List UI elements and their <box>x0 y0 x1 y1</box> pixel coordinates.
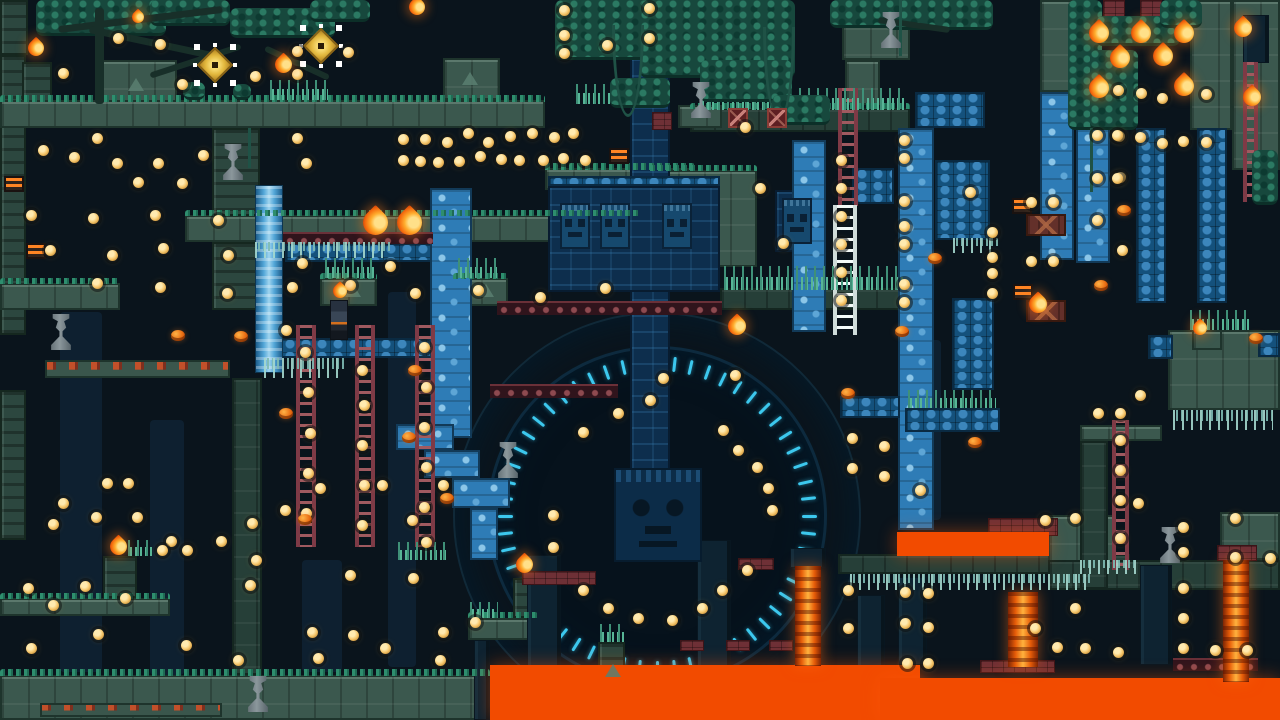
coin <box>26 210 37 221</box>
coin <box>123 478 134 489</box>
fire-bug <box>1094 280 1108 291</box>
grass-spikes <box>908 390 996 408</box>
coin <box>113 33 124 44</box>
coin <box>112 158 123 169</box>
coin <box>1048 197 1059 208</box>
coin <box>1115 495 1126 506</box>
coin <box>1026 256 1037 267</box>
ice-column <box>430 188 472 438</box>
ladder <box>415 325 435 547</box>
coin <box>1178 547 1189 558</box>
coin <box>535 292 546 303</box>
coin <box>538 155 549 166</box>
coin <box>843 623 854 634</box>
coin <box>548 510 559 521</box>
fire-bug <box>408 365 422 376</box>
coin <box>847 463 858 474</box>
coin <box>1136 88 1147 99</box>
lava-pool <box>880 678 1280 720</box>
coin <box>899 135 910 146</box>
coin <box>287 282 298 293</box>
coin <box>93 629 104 640</box>
coin <box>245 580 256 591</box>
coin <box>1133 498 1144 509</box>
tree-canopy <box>233 84 251 100</box>
coin <box>250 71 261 82</box>
dark-pillar <box>790 548 826 568</box>
coin <box>879 441 890 452</box>
grass-spikes <box>270 80 328 100</box>
coin <box>1048 256 1059 267</box>
coin <box>987 268 998 279</box>
coin <box>580 155 591 166</box>
coin <box>398 155 409 166</box>
torch-track <box>40 703 222 717</box>
coin <box>357 520 368 531</box>
coin <box>987 227 998 238</box>
icicles <box>264 358 344 378</box>
coin <box>613 408 624 419</box>
coin <box>300 347 311 358</box>
coin <box>836 155 847 166</box>
coin <box>740 122 751 133</box>
ice-column <box>470 508 498 560</box>
coin <box>419 342 430 353</box>
coin <box>527 128 538 139</box>
coin <box>1265 553 1276 564</box>
coin <box>58 498 69 509</box>
coin <box>38 145 49 156</box>
coin <box>1113 85 1124 96</box>
blue-block <box>1148 335 1173 359</box>
coin <box>1052 642 1063 653</box>
fire-bug <box>1117 205 1131 216</box>
lava-vent <box>609 148 629 164</box>
triangle-marker-icon <box>128 78 144 91</box>
coin <box>357 365 368 376</box>
coin <box>280 505 291 516</box>
coin <box>26 643 37 654</box>
coin <box>1230 552 1241 563</box>
brick-platform <box>522 571 596 585</box>
lava-vent <box>26 243 46 259</box>
lava-fall <box>795 566 821 666</box>
icicles <box>850 574 1090 590</box>
coin <box>158 243 169 254</box>
coin <box>155 39 166 50</box>
coin <box>475 151 486 162</box>
blue-block <box>840 396 900 418</box>
carved-face-icon <box>782 198 812 244</box>
coin <box>902 658 913 669</box>
coin <box>987 252 998 263</box>
coin <box>836 267 847 278</box>
coin <box>1070 603 1081 614</box>
coin <box>899 153 910 164</box>
coin <box>1178 613 1189 624</box>
coin <box>1092 130 1103 141</box>
coin <box>359 480 370 491</box>
dark-pillar <box>474 640 490 720</box>
coin <box>514 155 525 166</box>
coin <box>1115 408 1126 419</box>
carved-column <box>103 556 137 598</box>
coin <box>223 250 234 261</box>
blue-block <box>905 408 1000 432</box>
grass-spikes <box>458 258 500 278</box>
coin <box>1080 643 1091 654</box>
lava-band <box>897 532 1049 556</box>
ice-column <box>452 478 510 508</box>
coin <box>1230 513 1241 524</box>
coin <box>1210 645 1221 656</box>
coin <box>923 658 934 669</box>
blue-block <box>1197 128 1227 303</box>
carved-face-icon <box>662 203 692 249</box>
coin <box>836 295 847 306</box>
player-character <box>330 300 348 340</box>
coin <box>216 536 227 547</box>
coin <box>307 627 318 638</box>
coin <box>305 428 316 439</box>
coin <box>58 68 69 79</box>
coin <box>281 325 292 336</box>
coin <box>157 545 168 556</box>
coin <box>1092 173 1103 184</box>
tree-canopy <box>1252 150 1278 205</box>
blue-block <box>852 168 894 204</box>
fire-bug <box>440 493 454 504</box>
artifact-af-hole <box>212 62 218 68</box>
coin <box>899 279 910 290</box>
coin <box>1201 89 1212 100</box>
game-viewport[interactable] <box>0 0 1280 720</box>
coin <box>1178 583 1189 594</box>
coin <box>359 400 370 411</box>
lava-fall <box>1223 560 1249 682</box>
coin <box>755 183 766 194</box>
brick-platform <box>726 640 750 651</box>
coin <box>133 177 144 188</box>
coin <box>602 40 613 51</box>
coin <box>433 157 444 168</box>
coin <box>292 46 303 57</box>
grass-spikes <box>724 266 904 290</box>
coin <box>658 373 669 384</box>
coin <box>1070 513 1081 524</box>
coin <box>155 282 166 293</box>
blue-block <box>935 160 990 240</box>
flame-icon <box>1149 42 1177 70</box>
coin <box>568 128 579 139</box>
coin <box>1117 245 1128 256</box>
coin <box>421 462 432 473</box>
coin <box>1115 435 1126 446</box>
coin <box>80 581 91 592</box>
coin <box>879 471 890 482</box>
lava-vent <box>4 176 24 192</box>
coin <box>752 462 763 473</box>
coin <box>1112 130 1123 141</box>
coin <box>177 178 188 189</box>
coin <box>421 537 432 548</box>
tree-canopy <box>310 0 370 22</box>
hanging-vine <box>248 128 251 168</box>
coin <box>442 137 453 148</box>
carved-column <box>0 390 26 540</box>
stone-block <box>0 283 120 310</box>
coin <box>1030 623 1041 634</box>
icicles <box>1173 410 1273 430</box>
coin <box>1242 645 1253 656</box>
coin <box>48 600 59 611</box>
coin <box>899 221 910 232</box>
coin <box>454 156 465 167</box>
coin <box>182 545 193 556</box>
coin <box>1113 647 1124 658</box>
icicles <box>953 238 998 253</box>
icicles <box>255 242 390 258</box>
tree-branch <box>95 8 104 104</box>
coin <box>45 245 56 256</box>
coin <box>836 183 847 194</box>
coin <box>836 239 847 250</box>
brick-platform <box>652 112 672 130</box>
fire-bug <box>895 326 909 337</box>
coin <box>843 585 854 596</box>
blue-block <box>915 92 985 128</box>
chain-platform <box>497 301 722 315</box>
coin <box>923 622 934 633</box>
coin <box>644 3 655 14</box>
grass-tuft <box>0 669 490 676</box>
dark-pillar <box>857 595 885 667</box>
coin <box>1092 215 1103 226</box>
fire-bug <box>841 388 855 399</box>
coin <box>421 382 432 393</box>
coin <box>435 655 446 666</box>
coin <box>102 478 113 489</box>
coin <box>107 250 118 261</box>
coin <box>505 131 516 142</box>
stone-urn <box>1157 527 1183 563</box>
coin <box>483 137 494 148</box>
coin <box>292 69 303 80</box>
coin <box>915 485 926 496</box>
grass-spikes <box>600 624 626 642</box>
fire-bug <box>234 331 248 342</box>
grass-spikes <box>128 540 154 556</box>
coin <box>247 518 258 529</box>
coin <box>357 440 368 451</box>
coin <box>987 288 998 299</box>
coin <box>213 215 224 226</box>
coin <box>559 5 570 16</box>
coin <box>899 239 910 250</box>
coin <box>549 132 560 143</box>
fire-bug <box>402 432 416 443</box>
coin <box>419 502 430 513</box>
coin <box>899 196 910 207</box>
coin <box>463 128 474 139</box>
fire-bug <box>1249 333 1263 344</box>
coin <box>419 422 430 433</box>
coin <box>1040 515 1051 526</box>
golden-artifact <box>197 47 233 83</box>
coin <box>348 630 359 641</box>
coin <box>847 433 858 444</box>
coin <box>603 603 614 614</box>
brick-platform <box>769 640 793 651</box>
coin <box>742 565 753 576</box>
coin <box>1157 93 1168 104</box>
coin <box>407 515 418 526</box>
coin <box>420 134 431 145</box>
coin <box>198 150 209 161</box>
coin <box>343 47 354 58</box>
coin <box>92 278 103 289</box>
grass-tuft <box>0 593 170 599</box>
golden-artifact <box>303 28 339 64</box>
coin <box>181 640 192 651</box>
coin <box>297 258 308 269</box>
coin <box>222 288 233 299</box>
coin <box>644 33 655 44</box>
coin <box>410 288 421 299</box>
coin <box>88 213 99 224</box>
coin <box>1135 132 1146 143</box>
coin <box>899 297 910 308</box>
coin <box>398 134 409 145</box>
coin <box>1201 137 1212 148</box>
coin <box>697 603 708 614</box>
artifact-af-hole <box>318 43 324 49</box>
carved-face-icon <box>614 468 702 562</box>
coin <box>92 133 103 144</box>
coin <box>23 583 34 594</box>
fire-bug <box>928 253 942 264</box>
coin <box>633 613 644 624</box>
coin <box>1115 533 1126 544</box>
fire-bug <box>279 408 293 419</box>
fire-bug <box>968 437 982 448</box>
coin <box>438 480 449 491</box>
coin <box>1112 173 1123 184</box>
coin <box>718 425 729 436</box>
coin <box>380 643 391 654</box>
coin <box>1026 197 1037 208</box>
coin <box>836 211 847 222</box>
coin <box>578 585 589 596</box>
coin <box>1178 643 1189 654</box>
blue-block <box>1136 128 1166 303</box>
stone-block <box>0 100 545 128</box>
coin <box>345 570 356 581</box>
coin <box>415 156 426 167</box>
coin <box>900 587 911 598</box>
icicles <box>1080 560 1136 574</box>
coin <box>900 618 911 629</box>
triangle-marker-icon <box>605 664 621 677</box>
ladder <box>355 325 375 547</box>
coin <box>1093 408 1104 419</box>
flame-icon <box>106 534 130 558</box>
flame-icon <box>25 37 48 60</box>
coin <box>559 30 570 41</box>
coin <box>965 187 976 198</box>
coin <box>578 427 589 438</box>
coin <box>645 395 656 406</box>
coin <box>69 152 80 163</box>
dark-pillar <box>1140 565 1172 665</box>
carved-column <box>0 0 28 55</box>
triangle-marker-icon <box>462 72 478 85</box>
brick-platform <box>680 640 704 651</box>
coin <box>1115 465 1126 476</box>
coin <box>473 285 484 296</box>
grass-tuft <box>650 165 757 171</box>
coin <box>301 158 312 169</box>
coin <box>470 617 481 628</box>
coin <box>303 468 314 479</box>
coin <box>767 505 778 516</box>
coin <box>315 483 326 494</box>
coin <box>251 555 262 566</box>
coin <box>496 154 507 165</box>
blue-block <box>952 298 994 390</box>
grass-spikes <box>325 258 375 278</box>
coin <box>303 387 314 398</box>
coin <box>1178 522 1189 533</box>
coin <box>763 483 774 494</box>
coin <box>923 588 934 599</box>
artifact-af-dot <box>194 44 200 50</box>
coin <box>558 153 569 164</box>
coin <box>377 480 388 491</box>
coin <box>385 261 396 272</box>
coin <box>313 653 324 664</box>
coin <box>292 133 303 144</box>
coin <box>778 238 789 249</box>
flame-icon <box>406 0 429 18</box>
circle-tick-icon <box>498 515 513 518</box>
stone-block <box>0 598 170 616</box>
coin <box>438 627 449 638</box>
coin <box>730 370 741 381</box>
lava-pool <box>490 665 920 720</box>
coin <box>559 48 570 59</box>
torch-track <box>45 360 230 378</box>
coin <box>600 283 611 294</box>
coin <box>91 512 102 523</box>
fire-bug <box>171 330 185 341</box>
coin <box>1178 136 1189 147</box>
grass-spikes <box>470 602 498 618</box>
coin <box>733 445 744 456</box>
coin <box>120 593 131 604</box>
circle-tick-icon <box>802 515 817 518</box>
coin <box>153 158 164 169</box>
coin <box>1135 390 1146 401</box>
fire-bug <box>298 514 312 525</box>
coin <box>177 79 188 90</box>
carved-column <box>212 242 260 310</box>
coin <box>548 542 559 553</box>
artifact-af-dot <box>300 25 306 31</box>
coin <box>166 536 177 547</box>
blue-block <box>548 176 720 186</box>
coin <box>1157 138 1168 149</box>
